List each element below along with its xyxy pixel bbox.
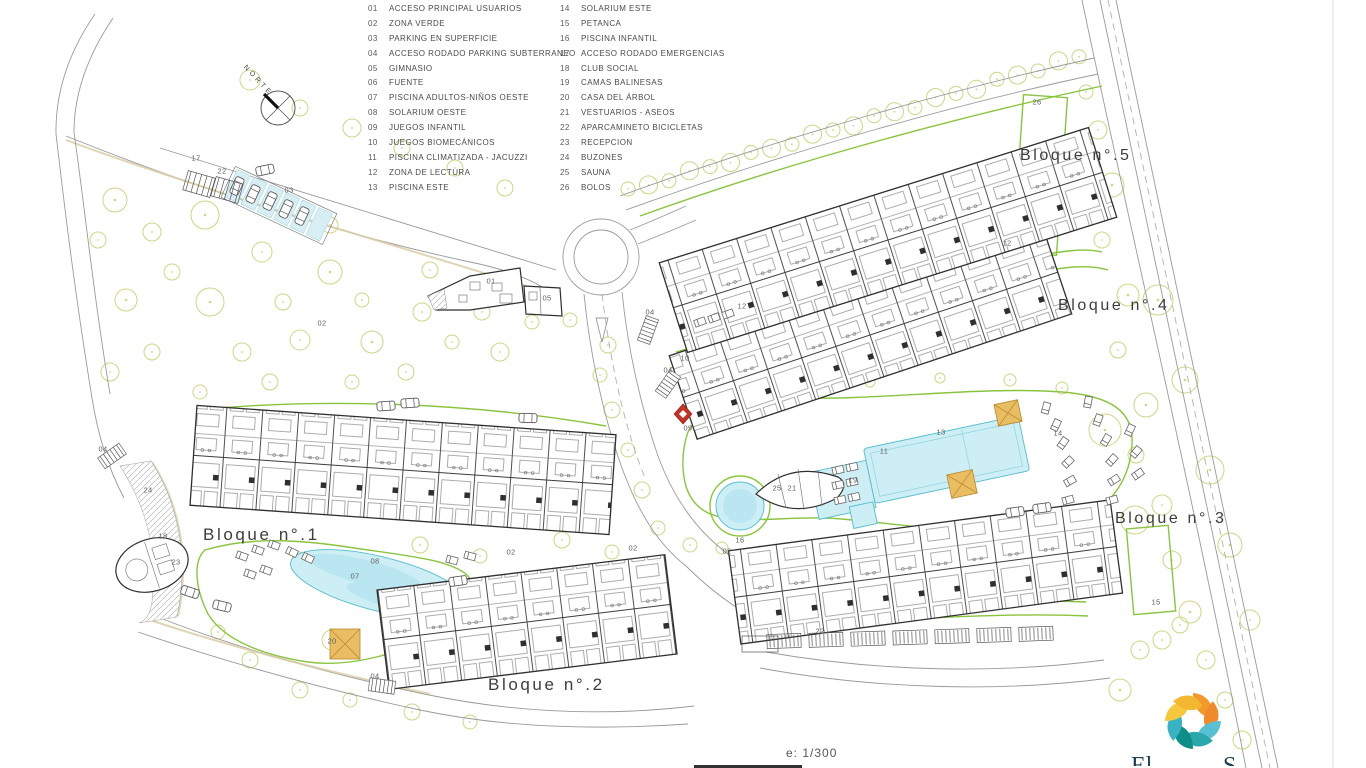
legend-item: 07 PISCINA ADULTOS-NIÑOS OESTE [368, 90, 560, 105]
legend-item-number: 03 [368, 34, 389, 43]
plan-marker: 11 [880, 447, 888, 456]
legend-item-number: 08 [368, 108, 389, 117]
legend-item: 26 BOLOS [560, 180, 740, 195]
legend-item: 09 JUEGOS INFANTIL [368, 120, 560, 135]
legend: 01 ACCESO PRINCIPAL USUARIOS 02 ZONA VER… [368, 1, 740, 195]
legend-item-number: 17 [560, 49, 581, 58]
legend-item-number: 16 [560, 34, 581, 43]
plan-marker: 02 [629, 544, 638, 553]
legend-item: 06 FUENTE [368, 75, 560, 90]
plan-marker: 12 [1003, 239, 1012, 248]
legend-item: 14 SOLARIUM ESTE [560, 1, 740, 16]
plan-marker: 13 [937, 428, 946, 437]
block-label: Bloque n°.3 [1115, 510, 1227, 528]
legend-item-number: 11 [368, 153, 389, 162]
plan-marker: 01 [487, 277, 496, 286]
logo-text-right: S [1223, 753, 1236, 766]
buildings-layer [190, 128, 1122, 690]
north-arrow-icon [261, 91, 295, 125]
legend-item: 04 ACCESO RODADO PARKING SUBTERRANEO [368, 46, 560, 61]
logo-text-left: El [1131, 753, 1152, 766]
plan-marker: 02 [318, 319, 327, 328]
legend-item: 16 PISCINA INFANTIL [560, 31, 740, 46]
legend-column-2: 14 SOLARIUM ESTE 15 PETANCA 16 PISCINA I… [560, 1, 740, 195]
legend-item: 23 RECEPCION [560, 135, 740, 150]
legend-item: 21 VESTUARIOS - ASEOS [560, 105, 740, 120]
legend-item: 22 APARCAMINETO BICICLETAS [560, 120, 740, 135]
legend-item-label: PISCINA ADULTOS-NIÑOS OESTE [389, 93, 529, 102]
plan-marker: 12 [738, 302, 747, 311]
legend-column-1: 01 ACCESO PRINCIPAL USUARIOS 02 ZONA VER… [368, 1, 560, 195]
legend-item-number: 04 [368, 49, 389, 58]
plan-marker: 22 [816, 627, 825, 636]
legend-item-label: SAUNA [581, 168, 611, 177]
plan-marker: 04 [371, 672, 380, 681]
plan-marker: 19 [849, 476, 858, 485]
logo-text-cropped: El S [1125, 753, 1285, 766]
plan-marker: 25 [773, 484, 782, 493]
site-plan-page: 01 ACCESO PRINCIPAL USUARIOS 02 ZONA VER… [0, 0, 1366, 768]
plan-marker: 03 [285, 186, 294, 195]
legend-item-label: ACCESO RODADO EMERGENCIAS [581, 49, 725, 58]
legend-item-label: VESTUARIOS - ASEOS [581, 108, 675, 117]
legend-item-number: 15 [560, 19, 581, 28]
legend-item-number: 12 [368, 168, 389, 177]
legend-item-number: 20 [560, 93, 581, 102]
legend-item: 17 ACCESO RODADO EMERGENCIAS [560, 46, 740, 61]
legend-item-label: JUEGOS INFANTIL [389, 123, 466, 132]
plan-marker: 10 [681, 354, 690, 363]
legend-item-label: CASA DEL ÁRBOL [581, 93, 655, 102]
legend-item: 05 GIMNASIO [368, 61, 560, 76]
block-label: Bloque n°.4 [1058, 297, 1170, 315]
legend-item-label: RECEPCION [581, 138, 633, 147]
plan-marker: 16 [736, 536, 745, 545]
building-bloque-1 [190, 405, 616, 534]
plan-marker: 15 [1152, 598, 1161, 607]
legend-item-number: 21 [560, 108, 581, 117]
plan-marker: 09 [684, 424, 693, 433]
legend-item: 15 PETANCA [560, 16, 740, 31]
plan-marker: 22 [218, 167, 227, 176]
legend-item-label: CLUB SOCIAL [581, 64, 639, 73]
plan-marker: 04 [646, 308, 655, 317]
legend-item-number: 09 [368, 123, 389, 132]
legend-item-number: 23 [560, 138, 581, 147]
legend-item-label: ZONA VERDE [389, 19, 445, 28]
legend-item-number: 13 [368, 183, 389, 192]
legend-item-number: 22 [560, 123, 581, 132]
legend-item-label: BUZONES [581, 153, 623, 162]
plan-marker: 07 [351, 572, 360, 581]
legend-item-number: 14 [560, 4, 581, 13]
legend-item-label: PISCINA CLIMATIZADA - JACUZZI [389, 153, 528, 162]
plan-marker: 17 [192, 154, 201, 163]
logo-flower-icon [1158, 686, 1228, 756]
legend-item: 03 PARKING EN SUPERFICIE [368, 31, 560, 46]
legend-item-number: 18 [560, 64, 581, 73]
legend-item-label: CAMAS BALINESAS [581, 78, 663, 87]
plan-marker: 08 [371, 557, 380, 566]
legend-item: 01 ACCESO PRINCIPAL USUARIOS [368, 1, 560, 16]
plan-marker: 24 [144, 486, 153, 495]
legend-item: 19 CAMAS BALINESAS [560, 75, 740, 90]
legend-item: 10 JUEGOS BIOMECÁNICOS [368, 135, 560, 150]
scale-label: e: 1/300 [786, 746, 837, 760]
plan-marker: 18 [159, 532, 168, 541]
legend-item: 18 CLUB SOCIAL [560, 61, 740, 76]
legend-item: 11 PISCINA CLIMATIZADA - JACUZZI [368, 150, 560, 165]
legend-item-number: 24 [560, 153, 581, 162]
plan-marker: 20 [328, 637, 337, 646]
legend-item: 08 SOLARIUM OESTE [368, 105, 560, 120]
plan-marker: 23 [172, 558, 181, 567]
plan-marker: 21 [788, 484, 797, 493]
plan-marker: 02 [723, 547, 732, 556]
legend-item: 12 ZONA DE LECTURA [368, 165, 560, 180]
plan-marker: 02 [507, 548, 516, 557]
legend-item-number: 25 [560, 168, 581, 177]
legend-item-number: 26 [560, 183, 581, 192]
legend-item-label: SOLARIUM OESTE [389, 108, 466, 117]
legend-item-number: 05 [368, 64, 389, 73]
legend-item-number: 19 [560, 78, 581, 87]
block-label: Bloque n°.2 [488, 675, 605, 695]
legend-item-label: PARKING EN SUPERFICIE [389, 34, 497, 43]
plan-marker: 04 [664, 366, 673, 375]
plan-marker: 05 [543, 294, 552, 303]
legend-item-label: FUENTE [389, 78, 424, 87]
legend-item-label: GIMNASIO [389, 64, 433, 73]
legend-item: 20 CASA DEL ÁRBOL [560, 90, 740, 105]
plan-marker: 04 [99, 445, 108, 454]
legend-item-label: BOLOS [581, 183, 611, 192]
legend-item-number: 07 [368, 93, 389, 102]
legend-item-number: 01 [368, 4, 389, 13]
legend-item-label: APARCAMINETO BICICLETAS [581, 123, 703, 132]
legend-item-label: PISCINA INFANTIL [581, 34, 657, 43]
entrance-building [428, 268, 524, 310]
legend-item-label: ACCESO RODADO PARKING SUBTERRANEO [389, 49, 576, 58]
legend-item-label: ACCESO PRINCIPAL USUARIOS [389, 4, 522, 13]
plan-marker: 26 [1033, 98, 1042, 107]
building-bloque-3 [728, 500, 1122, 644]
legend-item-label: PISCINA ESTE [389, 183, 449, 192]
plan-marker: 14 [1054, 429, 1063, 438]
developer-logo: El S [1125, 686, 1285, 768]
legend-item: 24 BUZONES [560, 150, 740, 165]
block-label: Bloque n°.5 [1020, 147, 1132, 165]
legend-item: 13 PISCINA ESTE [368, 180, 560, 195]
legend-item: 02 ZONA VERDE [368, 16, 560, 31]
legend-item-label: SOLARIUM ESTE [581, 4, 652, 13]
legend-item-number: 06 [368, 78, 389, 87]
legend-item-number: 02 [368, 19, 389, 28]
legend-item-number: 10 [368, 138, 389, 147]
legend-item: 25 SAUNA [560, 165, 740, 180]
legend-item-label: ZONA DE LECTURA [389, 168, 470, 177]
block-label: Bloque n°.1 [203, 525, 320, 545]
legend-item-label: JUEGOS BIOMECÁNICOS [389, 138, 495, 147]
legend-item-label: PETANCA [581, 19, 621, 28]
